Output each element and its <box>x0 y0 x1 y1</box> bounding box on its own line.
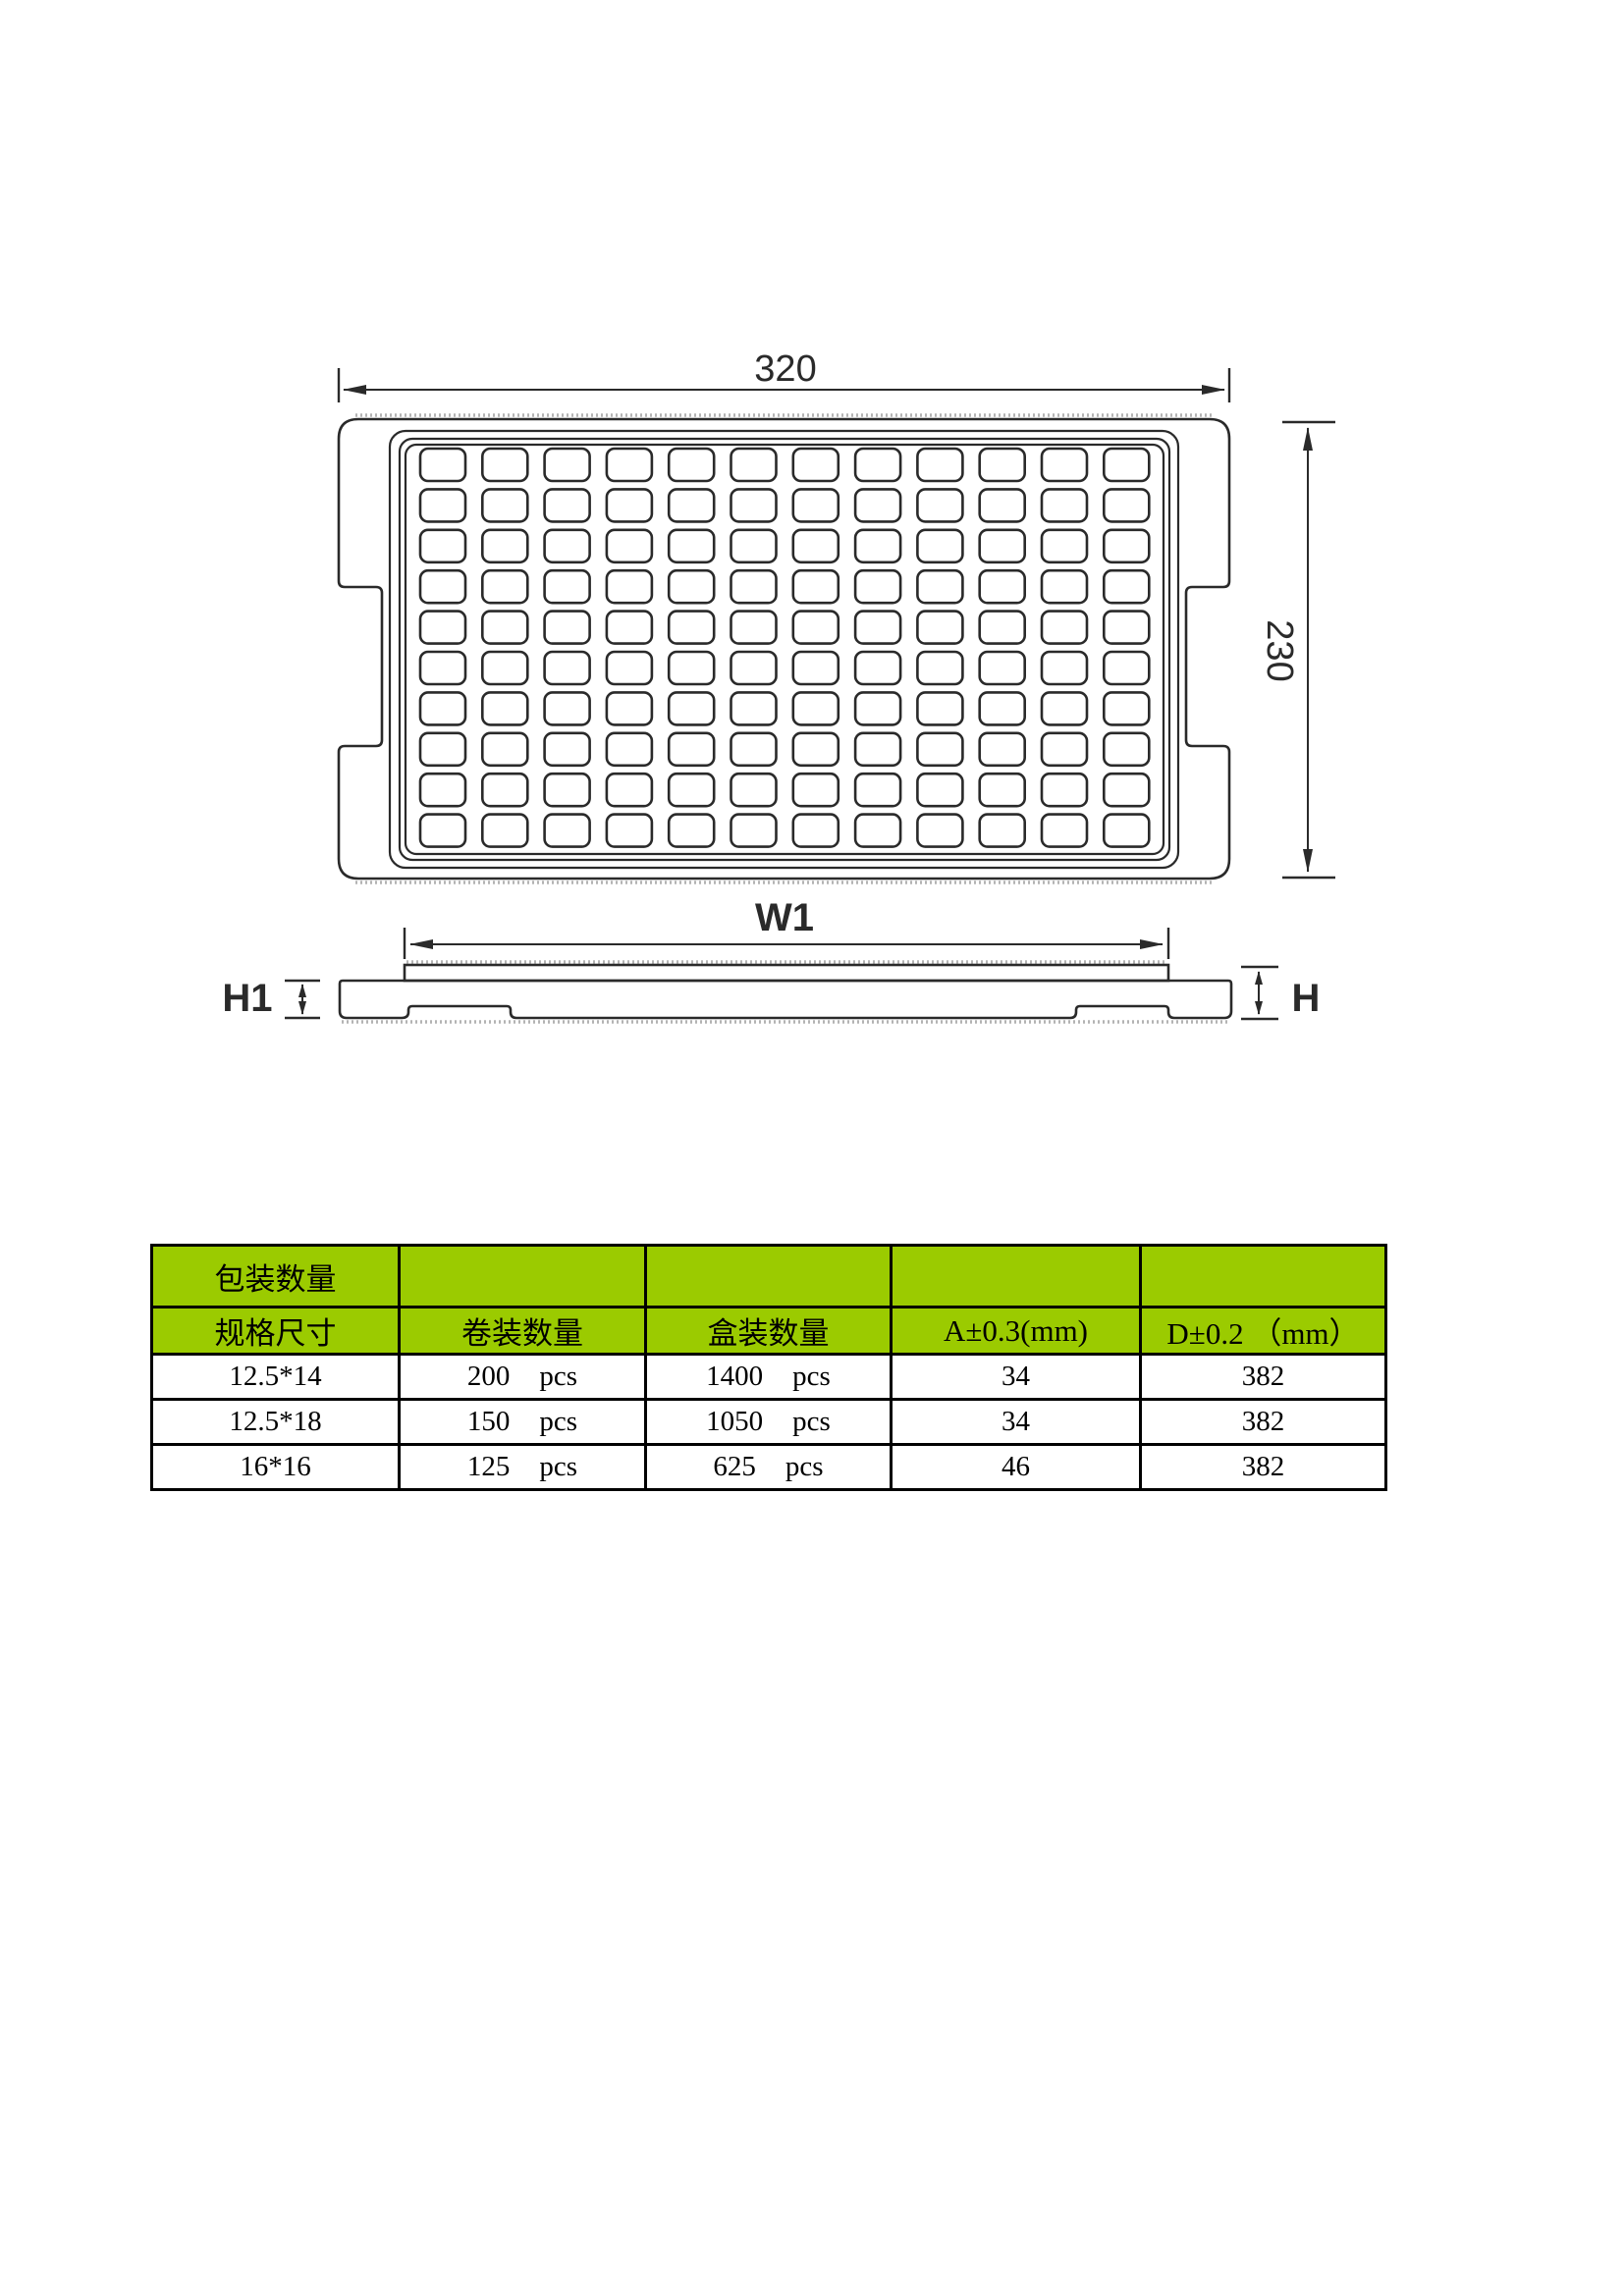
tray-pocket <box>731 815 777 847</box>
tray-pocket <box>545 733 590 766</box>
tray-pocket <box>917 570 962 603</box>
tray-pocket <box>607 774 652 806</box>
tray-pocket <box>607 489 652 521</box>
tray-pocket <box>855 733 900 766</box>
table-row: 12.5*18 150pcs 1050pcs 34 382 <box>152 1400 1386 1445</box>
tray-pocket <box>1104 692 1149 724</box>
band-cell-empty <box>400 1246 646 1308</box>
tray-pocket <box>607 449 652 481</box>
tray-pocket <box>731 449 777 481</box>
tray-pocket <box>980 570 1025 603</box>
tray-pocket <box>669 570 714 603</box>
cell-a-value: 34 <box>892 1400 1141 1445</box>
tray-pocket <box>482 733 527 766</box>
tray-pocket <box>793 612 839 644</box>
tray-pocket <box>420 774 465 806</box>
tray-pocket <box>731 570 777 603</box>
tray-pocket <box>669 815 714 847</box>
tray-pocket <box>545 449 590 481</box>
dim-w1: W1 <box>405 896 1168 959</box>
tray-pocket <box>1042 733 1087 766</box>
tray-pocket <box>545 652 590 684</box>
tray-pocket <box>917 489 962 521</box>
tray-pocket <box>669 449 714 481</box>
tray-pocket <box>545 692 590 724</box>
cell-d-value: 382 <box>1141 1400 1386 1445</box>
tray-pocket <box>420 612 465 644</box>
tray-pocket <box>917 815 962 847</box>
technical-drawing: 320 230 W1 <box>0 0 1624 2296</box>
tray-pocket <box>482 489 527 521</box>
col-header-a-tol: A±0.3(mm) <box>892 1308 1141 1355</box>
tray-pocket <box>855 815 900 847</box>
tray-pocket <box>793 570 839 603</box>
tray-pocket <box>420 733 465 766</box>
tray-pocket <box>1104 449 1149 481</box>
tray-pocket <box>1104 815 1149 847</box>
band-cell-title: 包装数量 <box>152 1246 400 1308</box>
tray-pocket <box>607 652 652 684</box>
dim-h1: H1 <box>222 977 320 1020</box>
inner-frame-2 <box>400 439 1169 860</box>
cell-roll-qty: 200pcs <box>400 1355 646 1400</box>
tray-pocket <box>482 530 527 562</box>
tray-pocket <box>980 530 1025 562</box>
tray-pocket <box>1042 815 1087 847</box>
cell-d-value: 382 <box>1141 1445 1386 1490</box>
tray-pocket <box>1104 530 1149 562</box>
tray-pocket <box>731 774 777 806</box>
tray-pocket <box>669 733 714 766</box>
tray-pocket <box>917 692 962 724</box>
tray-pocket <box>482 612 527 644</box>
tray-pocket <box>1104 570 1149 603</box>
tray-pocket <box>793 815 839 847</box>
tray-pocket <box>731 612 777 644</box>
tray-pocket <box>482 692 527 724</box>
pocket-grid <box>420 449 1149 847</box>
tray-pocket <box>731 733 777 766</box>
dim-width-320: 320 <box>339 348 1229 402</box>
tray-pocket <box>545 489 590 521</box>
tray-pocket <box>980 733 1025 766</box>
tray-side-view <box>340 962 1231 1022</box>
tray-pocket <box>482 570 527 603</box>
inner-frame-3 <box>406 445 1164 854</box>
cell-roll-qty: 150pcs <box>400 1400 646 1445</box>
tray-pocket <box>855 774 900 806</box>
band-cell-empty <box>892 1246 1141 1308</box>
tray-pocket <box>482 449 527 481</box>
col-header-box-qty: 盒装数量 <box>646 1308 892 1355</box>
tray-pocket <box>731 692 777 724</box>
band-label: 包装数量 <box>215 1262 337 1297</box>
tray-pocket <box>793 530 839 562</box>
tray-pocket <box>980 489 1025 521</box>
tray-pocket <box>669 692 714 724</box>
cell-box-qty: 1050pcs <box>646 1400 892 1445</box>
tray-pocket <box>980 652 1025 684</box>
cell-size: 12.5*14 <box>152 1355 400 1400</box>
tray-pocket <box>545 815 590 847</box>
tray-pocket <box>1104 612 1149 644</box>
tray-pocket <box>855 652 900 684</box>
tray-pocket <box>1042 692 1087 724</box>
tray-pocket <box>917 652 962 684</box>
tray-pocket <box>1042 449 1087 481</box>
tray-pocket <box>731 530 777 562</box>
tray-pocket <box>793 449 839 481</box>
tray-pocket <box>1042 652 1087 684</box>
tray-pocket <box>420 489 465 521</box>
tray-pocket <box>980 692 1025 724</box>
tray-pocket <box>420 530 465 562</box>
table-row-band: 包装数量 <box>152 1246 1386 1308</box>
tray-top-view <box>339 415 1229 882</box>
table-row-headers: 规格尺寸 卷装数量 盒装数量 A±0.3(mm) D±0.2 （mm） <box>152 1308 1386 1355</box>
tray-pocket <box>980 815 1025 847</box>
tray-pocket <box>482 815 527 847</box>
tray-pocket <box>855 449 900 481</box>
tray-pocket <box>420 815 465 847</box>
tray-pocket <box>1104 774 1149 806</box>
tray-pocket <box>980 449 1025 481</box>
dim-label-h1: H1 <box>222 977 272 1020</box>
tray-pocket <box>1042 530 1087 562</box>
tray-pocket <box>669 652 714 684</box>
tray-pocket <box>917 774 962 806</box>
dim-label-230: 230 <box>1259 619 1300 681</box>
tray-pocket <box>1042 774 1087 806</box>
tray-pocket <box>917 612 962 644</box>
tray-pocket <box>1104 652 1149 684</box>
tray-pocket <box>482 774 527 806</box>
table-row: 16*16 125pcs 625pcs 46 382 <box>152 1445 1386 1490</box>
col-header-d-tol: D±0.2 （mm） <box>1141 1308 1386 1355</box>
band-cell-empty <box>646 1246 892 1308</box>
tray-pocket <box>545 774 590 806</box>
dim-h: H <box>1241 967 1320 1020</box>
spec-sheet-page: 320 230 W1 <box>0 0 1624 2296</box>
cell-d-value: 382 <box>1141 1355 1386 1400</box>
col-header-size: 规格尺寸 <box>152 1308 400 1355</box>
table-row: 12.5*14 200pcs 1400pcs 34 382 <box>152 1355 1386 1400</box>
tray-pocket <box>793 692 839 724</box>
tray-pocket <box>855 530 900 562</box>
cell-box-qty: 625pcs <box>646 1445 892 1490</box>
tray-outline <box>339 419 1229 879</box>
side-body <box>340 981 1231 1018</box>
tray-pocket <box>731 489 777 521</box>
tray-pocket <box>793 733 839 766</box>
col-header-roll-qty: 卷装数量 <box>400 1308 646 1355</box>
cell-a-value: 46 <box>892 1445 1141 1490</box>
cell-size: 12.5*18 <box>152 1400 400 1445</box>
packing-table: 包装数量 规格尺寸 卷装数量 盒装数量 A±0.3(mm) D±0.2 （mm）… <box>150 1244 1387 1491</box>
tray-pocket <box>607 733 652 766</box>
inner-frame-1 <box>390 431 1178 868</box>
tray-pocket <box>545 570 590 603</box>
tray-pocket <box>793 652 839 684</box>
tray-pocket <box>420 570 465 603</box>
tray-pocket <box>980 774 1025 806</box>
tray-pocket <box>669 612 714 644</box>
dim-label-320: 320 <box>754 348 816 390</box>
cell-box-qty: 1400pcs <box>646 1355 892 1400</box>
tray-pocket <box>607 692 652 724</box>
tray-pocket <box>917 530 962 562</box>
cell-a-value: 34 <box>892 1355 1141 1400</box>
tray-pocket <box>420 692 465 724</box>
tray-pocket <box>793 774 839 806</box>
tray-pocket <box>669 489 714 521</box>
tray-pocket <box>669 530 714 562</box>
tray-pocket <box>1042 489 1087 521</box>
tray-pocket <box>545 612 590 644</box>
tray-pocket <box>545 530 590 562</box>
tray-pocket <box>607 530 652 562</box>
tray-pocket <box>855 612 900 644</box>
band-cell-empty <box>1141 1246 1386 1308</box>
dim-label-w1: W1 <box>755 896 814 939</box>
tray-pocket <box>420 652 465 684</box>
tray-pocket <box>607 815 652 847</box>
cell-size: 16*16 <box>152 1445 400 1490</box>
tray-pocket <box>1104 489 1149 521</box>
tray-pocket <box>669 774 714 806</box>
tray-pocket <box>1042 570 1087 603</box>
tray-pocket <box>855 489 900 521</box>
tray-pocket <box>917 449 962 481</box>
dim-height-230: 230 <box>1259 422 1335 878</box>
tray-pocket <box>855 570 900 603</box>
tray-pocket <box>482 652 527 684</box>
tray-pocket <box>1042 612 1087 644</box>
side-flange <box>405 965 1168 981</box>
tray-pocket <box>1104 733 1149 766</box>
tray-pocket <box>855 692 900 724</box>
tray-pocket <box>420 449 465 481</box>
tray-pocket <box>793 489 839 521</box>
tray-pocket <box>607 570 652 603</box>
cell-roll-qty: 125pcs <box>400 1445 646 1490</box>
tray-pocket <box>731 652 777 684</box>
tray-pocket <box>917 733 962 766</box>
tray-pocket <box>607 612 652 644</box>
dim-label-h: H <box>1292 977 1321 1020</box>
tray-pocket <box>980 612 1025 644</box>
